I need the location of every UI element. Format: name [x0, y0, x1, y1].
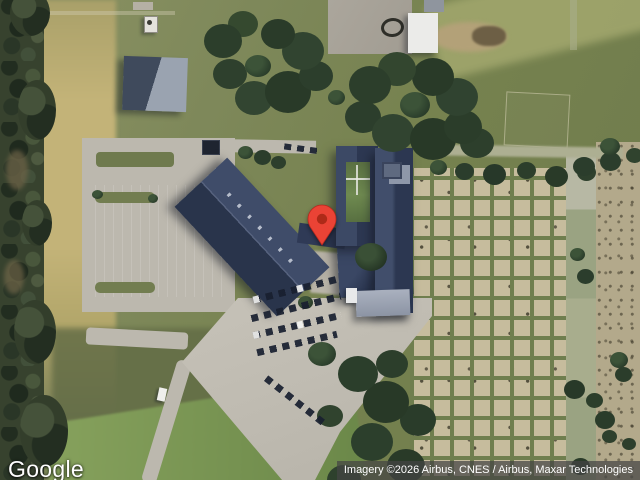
cemetery-top-path	[438, 144, 623, 158]
field-vertical-path	[570, 0, 577, 50]
cemetery-road	[566, 150, 598, 480]
forest-edge-blob	[22, 200, 52, 246]
map-canvas[interactable]: Google Imagery ©2026 Airbus, CNES / Airb…	[0, 0, 640, 480]
concrete-speck	[133, 2, 153, 10]
gray-roof-piece	[424, 0, 444, 12]
dirt-debris	[472, 26, 506, 46]
parking-median	[95, 192, 155, 203]
outbuilding-northwest	[122, 56, 188, 112]
forest-edge-blob	[14, 300, 56, 364]
courtyard-green	[346, 162, 370, 222]
tree-small-row	[238, 146, 253, 159]
parking-median	[95, 282, 155, 293]
shed-dark-spot	[147, 20, 152, 25]
tree-row-cemetery-top	[430, 160, 447, 175]
tree-small	[610, 352, 628, 368]
google-logo[interactable]: Google	[8, 456, 84, 480]
cemetery-grid	[410, 168, 568, 480]
tree-cluster-center	[400, 92, 430, 118]
tree-small	[92, 190, 103, 199]
attribution-bar: Imagery ©2026 Airbus, CNES / Airbus, Max…	[337, 461, 640, 480]
forest-edge-blob	[18, 80, 56, 140]
forest-brown-patch	[4, 260, 24, 294]
pin-inner-dot	[317, 214, 327, 224]
ball-field-outline	[504, 91, 571, 148]
cemetery-right-section	[596, 142, 640, 480]
tree-cluster-bottom-center	[308, 342, 336, 366]
courtyard-path	[346, 178, 370, 180]
white-building	[408, 13, 438, 53]
tree-on-roof	[355, 243, 387, 271]
dumpster	[202, 140, 220, 155]
parking-median	[96, 152, 174, 167]
pin-body	[308, 205, 336, 245]
tree-row-cemetery-road	[570, 248, 585, 261]
tree-small	[600, 138, 620, 155]
courtyard-path	[356, 165, 358, 195]
tree-small	[148, 194, 158, 203]
rooftop-unit	[382, 162, 402, 179]
tree-cluster-top-center	[245, 55, 271, 77]
tree-small	[328, 90, 345, 105]
building-south-gray-roof	[356, 289, 411, 317]
location-pin[interactable]	[307, 204, 337, 248]
white-canopy	[346, 288, 357, 303]
forest-brown-patch	[6, 150, 28, 190]
roof-vents	[227, 192, 293, 263]
